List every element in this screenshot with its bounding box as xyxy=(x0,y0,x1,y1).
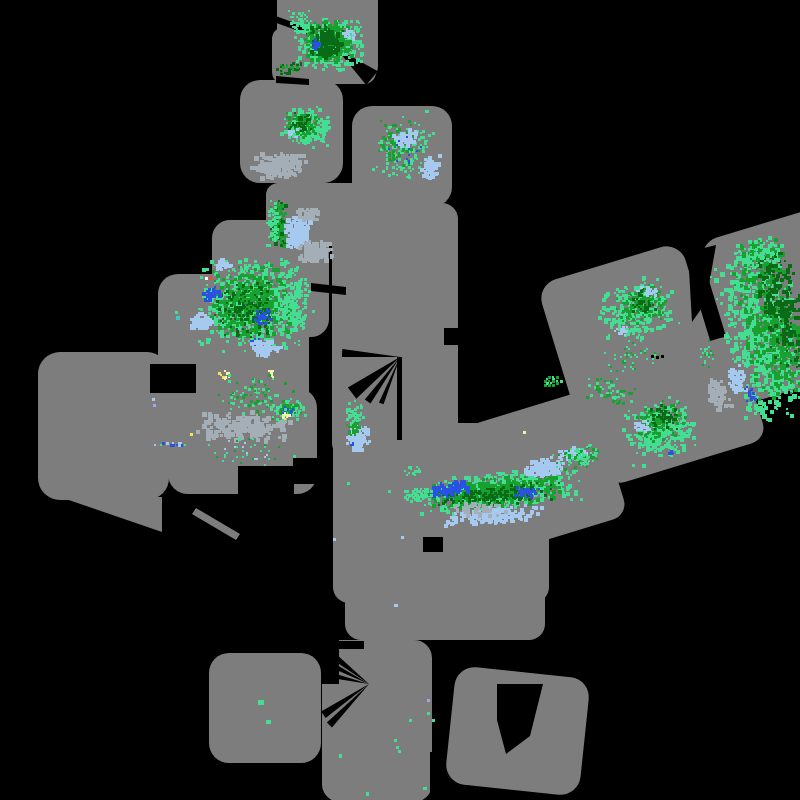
radar-precipitation-canvas xyxy=(0,0,800,800)
radar-composite-map xyxy=(0,0,800,800)
